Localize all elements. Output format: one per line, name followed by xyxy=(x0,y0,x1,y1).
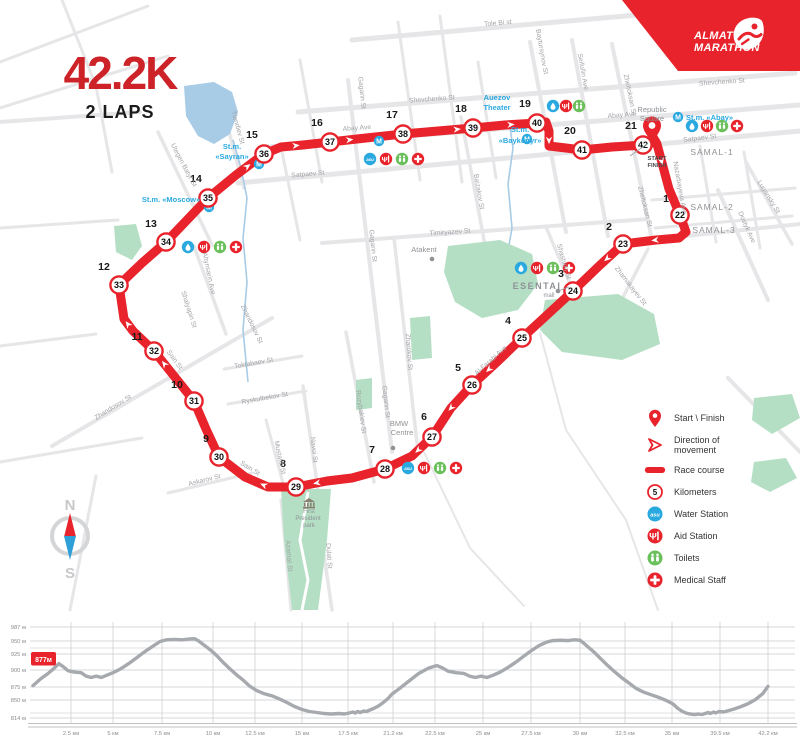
chart-ytick-label: 950 м xyxy=(11,639,26,645)
knife-glyph xyxy=(539,264,540,271)
person-body xyxy=(437,467,439,471)
legend-label-aid-station: Aid Station xyxy=(674,531,718,541)
street-label: Gagarin St xyxy=(356,76,366,109)
water-text: asu xyxy=(650,512,660,518)
poi-label-poi: Republic xyxy=(637,105,666,114)
person-body xyxy=(554,267,556,271)
poi-label-metro: «Sayran» xyxy=(215,152,248,161)
person-body xyxy=(576,105,578,109)
lap1-km-number: 15 xyxy=(246,129,258,141)
poi-label-poi: Square xyxy=(640,114,664,123)
marathon-course-poster: ΨasuΨΨΨasuΨΨMMMMM22123224325426527628729… xyxy=(0,0,800,740)
person-right-body xyxy=(656,556,659,561)
poi-label-metro: St.m. xyxy=(511,125,529,134)
lap1-km-number: 9 xyxy=(203,433,209,445)
fork-glyph: Ψ xyxy=(533,264,539,273)
chart-xtick-label: 2.5 км xyxy=(63,731,79,737)
cross-h xyxy=(452,467,460,469)
race-course-icon xyxy=(644,464,666,476)
poi-label-poi: Centre xyxy=(391,428,414,437)
person-head xyxy=(221,243,223,245)
legend-item-race-course: Race course xyxy=(644,460,794,479)
compass-south-label: S xyxy=(65,565,75,582)
monument-column xyxy=(307,503,309,507)
person-head xyxy=(580,102,582,104)
lap1-km-number: 10 xyxy=(171,379,183,391)
chart-xtick-label: 7.5 км xyxy=(154,731,170,737)
water-asu-glyph: asu xyxy=(366,157,374,162)
legend-item-kilometers: 5 Kilometers xyxy=(644,482,794,501)
street-label: Zhandosov St xyxy=(94,394,133,422)
water-station-icon: asu xyxy=(644,505,666,523)
runner-head xyxy=(752,24,758,30)
monument-column xyxy=(310,503,312,507)
person-head xyxy=(441,464,443,466)
aid-station-icon: Ψ xyxy=(531,262,543,274)
poi-label-tiny: park xyxy=(303,523,316,529)
km-marker-number: 31 xyxy=(189,396,199,406)
km-marker-number: 35 xyxy=(203,193,213,203)
metro-m: M xyxy=(376,139,382,146)
chart-xtick-label: 5 км xyxy=(107,731,118,737)
metro-icon: M xyxy=(673,112,683,122)
person-body xyxy=(719,125,721,129)
lap1-km-number: 4 xyxy=(505,315,511,327)
knife-glyph xyxy=(388,155,389,162)
lap1-km-number: 21 xyxy=(625,120,637,132)
street-label: Toktabaev St xyxy=(234,357,274,371)
person-head xyxy=(576,102,578,104)
toilets-icon xyxy=(644,549,666,567)
pin-shape xyxy=(649,410,661,427)
legend-item-start-finish: Start \ Finish xyxy=(644,406,794,430)
street-label: Lugansky St xyxy=(755,179,781,215)
pin-hole xyxy=(653,413,658,418)
poi-label-metroL: St.m. «Abay» xyxy=(686,113,733,122)
toilets-icon xyxy=(396,153,408,165)
street-line xyxy=(0,334,96,346)
lap1-km-number: 12 xyxy=(98,261,110,273)
knife-glyph xyxy=(206,243,207,250)
toilets-circle xyxy=(573,100,585,112)
elevation-profile-line xyxy=(33,639,768,715)
chart-xtick-label: 35 км xyxy=(665,731,680,737)
toilets-icon xyxy=(434,462,446,474)
course-bar xyxy=(645,467,665,473)
legend-label-start-finish: Start \ Finish xyxy=(674,413,725,423)
water-station-icon xyxy=(515,262,527,274)
legend-item-direction: Direction of movement xyxy=(644,433,794,457)
cross-h xyxy=(733,125,741,127)
direction-arrow-icon xyxy=(644,436,666,454)
poi-label-metro: «Baykonyr» xyxy=(499,136,542,145)
toilets-circle xyxy=(214,241,226,253)
lap1-km-number: 2 xyxy=(606,221,612,233)
person-head xyxy=(719,122,721,124)
person-head xyxy=(399,155,401,157)
water-station-icon: asu xyxy=(364,153,376,165)
person-body xyxy=(217,246,219,250)
legend-label-direction: Direction of movement xyxy=(674,435,756,455)
person-body xyxy=(580,105,582,109)
cross-horizontal xyxy=(650,578,660,581)
water-station-icon xyxy=(182,241,194,253)
start-elevation-text: 877м xyxy=(35,657,52,664)
toilets-icon xyxy=(573,100,585,112)
lap1-km-number: 17 xyxy=(386,109,398,121)
poi-dot xyxy=(430,257,435,262)
km-marker-number: 29 xyxy=(291,482,301,492)
person-body xyxy=(723,125,725,129)
legend-label-kilometers: Kilometers xyxy=(674,487,717,497)
person-body xyxy=(221,246,223,250)
legend-label-toilets: Toilets xyxy=(674,553,700,563)
poi-label-poi: BMW xyxy=(390,419,409,428)
chart-xtick-label: 30 км xyxy=(573,731,588,737)
poi-label-poi: Atakent xyxy=(411,245,437,254)
chart-xtick-label: 12.5 км xyxy=(245,731,264,737)
km-marker-number: 39 xyxy=(468,123,478,133)
toilets-circle xyxy=(396,153,408,165)
person-body xyxy=(441,467,443,471)
compass-north-label: N xyxy=(65,497,76,514)
street-label: Gagarin St xyxy=(380,385,390,418)
km-number: 5 xyxy=(653,488,658,497)
poi-label-district: SAMAL-3 xyxy=(692,225,735,235)
lap1-km-number: 11 xyxy=(131,331,142,343)
poi-label-sf: START xyxy=(648,156,667,162)
pin-hole xyxy=(649,122,656,129)
toilets-icon xyxy=(214,241,226,253)
toilets-circle xyxy=(648,550,663,565)
knife-glyph xyxy=(657,531,659,540)
street-line xyxy=(352,14,648,40)
lap1-km-number: 5 xyxy=(455,362,461,374)
poi-dot xyxy=(391,446,396,451)
knife-glyph xyxy=(709,122,710,129)
chart-xtick-label: 10 км xyxy=(206,731,221,737)
km-marker-number: 26 xyxy=(467,380,477,390)
lap1-km-number: 6 xyxy=(421,411,427,423)
poi-label-tiny: President xyxy=(295,516,321,522)
street-line xyxy=(282,152,300,240)
poi-label-metro: St.m. «Moscow» xyxy=(142,195,200,204)
chart-xtick-label: 17.5 км xyxy=(338,731,357,737)
poi-label-district: SAMAL-2 xyxy=(690,202,733,212)
chart-ytick-label: 925 м xyxy=(11,652,26,658)
street-line xyxy=(540,333,658,610)
chart-xtick-label: 39.5 км xyxy=(710,731,729,737)
knife-glyph xyxy=(426,464,427,471)
chart-xtick-label: 25 км xyxy=(476,731,491,737)
street-line xyxy=(0,220,118,228)
monument-column xyxy=(313,503,315,507)
person-body xyxy=(550,267,552,271)
cross-h xyxy=(232,246,240,248)
map-legend: Start \ Finish Direction of movement Rac… xyxy=(644,406,794,592)
chart-xtick-label: 22.5 км xyxy=(425,731,444,737)
legend-label-medical: Medical Staff xyxy=(674,575,726,585)
metro-m: M xyxy=(675,115,681,122)
km-marker-number: 23 xyxy=(618,239,628,249)
chart-xtick-label: 15 км xyxy=(295,731,310,737)
water-station-icon xyxy=(547,100,559,112)
monument-column xyxy=(304,503,306,507)
chart-ytick-label: 850 м xyxy=(11,698,26,704)
street-label: Shalyapin St xyxy=(179,290,197,329)
toilets-circle xyxy=(434,462,446,474)
person-body xyxy=(403,158,405,162)
street-label: Zharokov St xyxy=(404,333,414,370)
metro-icon: M xyxy=(374,136,384,146)
poi-label-metro: Auezov xyxy=(484,93,512,102)
km-marker-number: 40 xyxy=(532,118,542,128)
lap1-km-number: 1 xyxy=(663,193,669,205)
fork-glyph: Ψ xyxy=(382,155,388,164)
km-marker-number: 34 xyxy=(161,237,171,247)
race-laps: 2 LAPS xyxy=(58,102,182,123)
legend-label-race-course: Race course xyxy=(674,465,725,475)
elevation-chart: 987 м950 м925 м900 м875 м850 м814 м2.5 к… xyxy=(11,622,797,737)
km-marker-number: 36 xyxy=(259,149,269,159)
medical-icon xyxy=(412,153,424,165)
street-line xyxy=(424,452,524,606)
km-marker-number: 27 xyxy=(427,432,437,442)
poi-label-tiny: mall xyxy=(543,293,554,299)
street-label: Abay Ave xyxy=(342,124,371,133)
poi-label-tiny: First xyxy=(303,509,315,515)
chart-xtick-label: 27.5 км xyxy=(521,731,540,737)
legend-item-medical: Medical Staff xyxy=(644,570,794,589)
street-line xyxy=(0,438,142,462)
arrow-shape xyxy=(649,439,661,451)
chart-ytick-label: 814 м xyxy=(11,716,26,722)
poi-label-metro: Theater xyxy=(483,103,510,112)
chart-xtick-label: 21.2 км xyxy=(383,731,402,737)
fork-glyph: Ψ xyxy=(200,243,206,252)
aid-station-icon: Ψ xyxy=(380,153,392,165)
knife-glyph xyxy=(568,102,569,109)
cross-h xyxy=(414,158,422,160)
person-left-body xyxy=(651,556,654,561)
lap1-km-number: 20 xyxy=(564,125,576,137)
street-label: Timiryazev St xyxy=(429,228,470,238)
poi-label-mall: ESENTAI xyxy=(513,281,562,291)
poi-label-district: SAMAL-1 xyxy=(690,147,733,157)
park-area xyxy=(410,316,432,360)
race-distance: 42.2K xyxy=(58,46,182,100)
aid-station-icon: Ψ xyxy=(560,100,572,112)
km-marker-number: 25 xyxy=(517,333,527,343)
chart-ytick-label: 875 м xyxy=(11,685,26,691)
poi-label-metro: St.m. xyxy=(223,142,241,151)
medical-icon xyxy=(450,462,462,474)
km-marker-number: 24 xyxy=(568,286,578,296)
person-body xyxy=(399,158,401,162)
km-marker-number: 41 xyxy=(577,145,587,155)
km-marker-number: 28 xyxy=(380,464,390,474)
chart-xtick-label: 32.5 км xyxy=(615,731,634,737)
km-marker-number: 30 xyxy=(214,452,224,462)
compass-needle-south xyxy=(64,536,76,560)
person-head xyxy=(437,464,439,466)
kilometer-marker-icon: 5 xyxy=(644,483,666,501)
street-label: Azamat St xyxy=(284,540,293,572)
legend-item-toilets: Toilets xyxy=(644,548,794,567)
chart-xtick-label: 42.2 км xyxy=(758,731,777,737)
chart-ytick-label: 987 м xyxy=(11,625,26,631)
park-area xyxy=(444,240,538,318)
person-head xyxy=(217,243,219,245)
legend-item-aid-station: Ψ Aid Station xyxy=(644,526,794,545)
km-marker-number: 33 xyxy=(114,280,124,290)
person-head xyxy=(403,155,405,157)
km-marker-number: 38 xyxy=(398,129,408,139)
person-head xyxy=(723,122,725,124)
aid-station-icon: Ψ xyxy=(198,241,210,253)
lap1-km-number: 18 xyxy=(455,103,467,115)
chart-ytick-label: 900 м xyxy=(11,668,26,674)
street-label: Navoi St xyxy=(309,437,319,463)
lap1-km-number: 19 xyxy=(519,98,531,110)
runner-badge-icon xyxy=(731,14,767,54)
fork-glyph: Ψ xyxy=(562,102,568,111)
park-area xyxy=(114,224,142,260)
km-marker-number: 42 xyxy=(638,140,648,150)
person-head xyxy=(550,264,552,266)
km-marker-number: 32 xyxy=(149,346,159,356)
street-line xyxy=(572,40,608,236)
start-finish-pin-icon xyxy=(644,407,666,429)
person-right-head xyxy=(656,553,659,556)
medical-icon xyxy=(230,241,242,253)
fork-glyph: Ψ xyxy=(649,531,657,542)
water-station-icon: asu xyxy=(402,462,414,474)
legend-label-water-station: Water Station xyxy=(674,509,728,519)
poi-label-sf: FINISH xyxy=(647,163,666,169)
fork-glyph: Ψ xyxy=(420,464,426,473)
legend-item-water-station: asu Water Station xyxy=(644,504,794,523)
lap1-km-number: 16 xyxy=(311,117,323,129)
fork-glyph: Ψ xyxy=(703,122,709,131)
lap1-km-number: 7 xyxy=(369,444,375,456)
aid-station-icon: Ψ xyxy=(644,527,666,545)
street-label: Ryskulbekov St xyxy=(241,391,288,406)
lap1-km-number: 13 xyxy=(145,218,157,230)
person-head xyxy=(554,264,556,266)
km-marker-number: 37 xyxy=(325,137,335,147)
person-left-head xyxy=(651,553,654,556)
aid-station-icon: Ψ xyxy=(418,462,430,474)
medical-staff-icon xyxy=(644,571,666,589)
street-line xyxy=(52,318,272,446)
water-asu-glyph: asu xyxy=(404,466,412,471)
